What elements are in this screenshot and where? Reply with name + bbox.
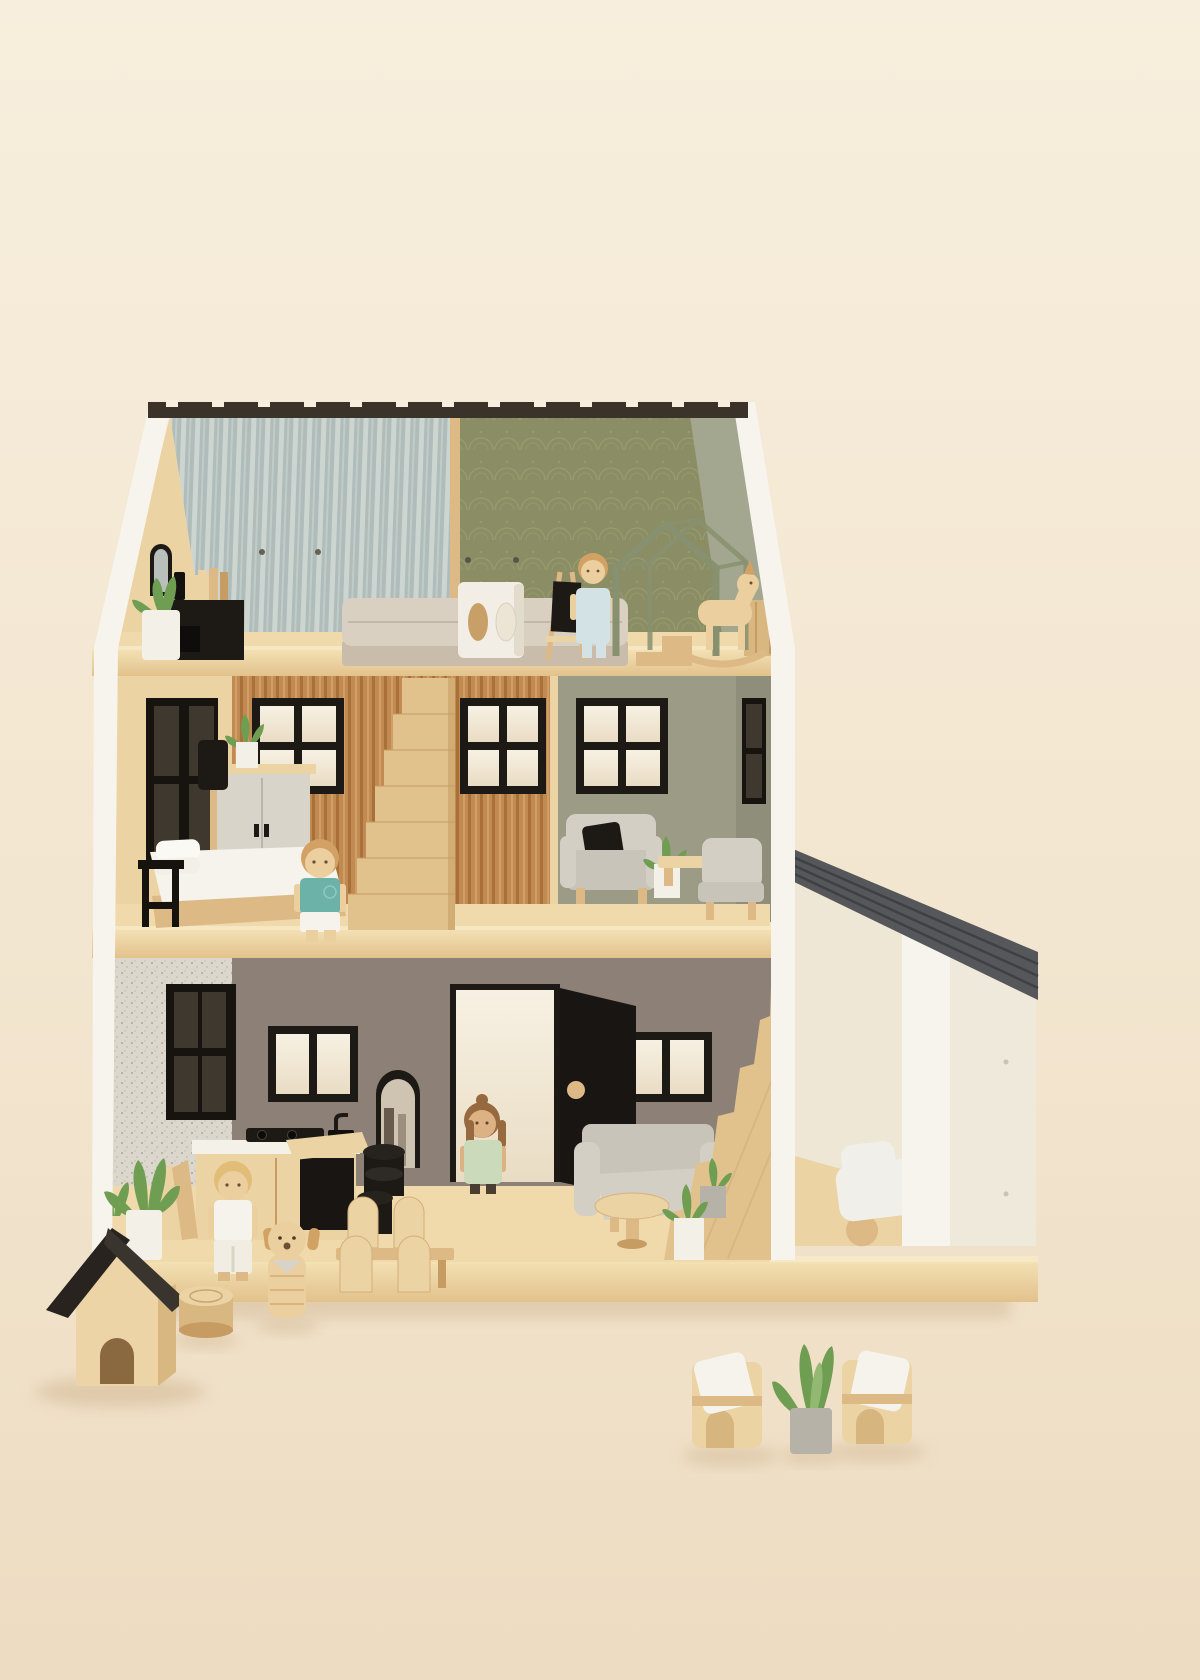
- screw: [259, 549, 265, 555]
- figure-outfit: [576, 588, 610, 644]
- wooden-book: [220, 572, 228, 600]
- figure-face: [581, 560, 605, 584]
- kitchen-dark-window: [166, 984, 236, 1120]
- living-window: [576, 698, 668, 794]
- screw: [465, 557, 471, 563]
- carport-post: [902, 934, 950, 1246]
- cube-hole: [468, 603, 488, 641]
- play-cube: [458, 582, 524, 658]
- dollhouse-scene: [0, 0, 1200, 1680]
- horse-head: [737, 573, 759, 595]
- ground-floor: [100, 958, 772, 1292]
- garden-chair-left: [692, 1351, 762, 1448]
- white-top: [214, 1200, 252, 1242]
- figure-face: [305, 848, 335, 878]
- screw: [315, 549, 321, 555]
- grey-pot: [790, 1408, 832, 1454]
- lamp-shade: [198, 740, 228, 790]
- hall-window: [268, 1026, 358, 1102]
- log-slice: [179, 1286, 233, 1338]
- stairwell-window: [460, 698, 546, 794]
- middle-floor: [92, 676, 795, 958]
- middle-floor-edge: [92, 930, 795, 958]
- desk-base: [300, 1158, 354, 1230]
- green-overalls: [464, 1140, 502, 1184]
- carport-side-wall: [950, 957, 1036, 1246]
- screw: [513, 557, 519, 563]
- white-shorts: [300, 912, 340, 932]
- cube-hole: [496, 603, 516, 641]
- dog-head: [268, 1221, 306, 1259]
- screw: [1004, 1192, 1009, 1197]
- right-wall: [771, 648, 795, 1260]
- screw: [1004, 1060, 1009, 1065]
- wooden-book: [198, 570, 207, 600]
- wardrobe-handle: [264, 824, 269, 837]
- figure-face: [218, 1171, 248, 1201]
- garden-chair-right: [842, 1349, 912, 1444]
- dining-chair: [398, 1236, 430, 1292]
- wardrobe-handle: [254, 824, 259, 837]
- carport: [786, 846, 1038, 1255]
- figure-mother: [208, 1161, 258, 1281]
- attic: [92, 416, 795, 676]
- white-pot: [142, 610, 180, 660]
- wooden-book: [209, 568, 218, 600]
- dog-nose: [284, 1243, 291, 1250]
- figure-boy: [294, 839, 346, 942]
- garden-plant: [772, 1344, 834, 1454]
- dining-chair: [340, 1236, 372, 1292]
- kenn​el-opening: [100, 1338, 134, 1384]
- door-knob: [567, 1081, 585, 1099]
- room-divider: [550, 676, 558, 922]
